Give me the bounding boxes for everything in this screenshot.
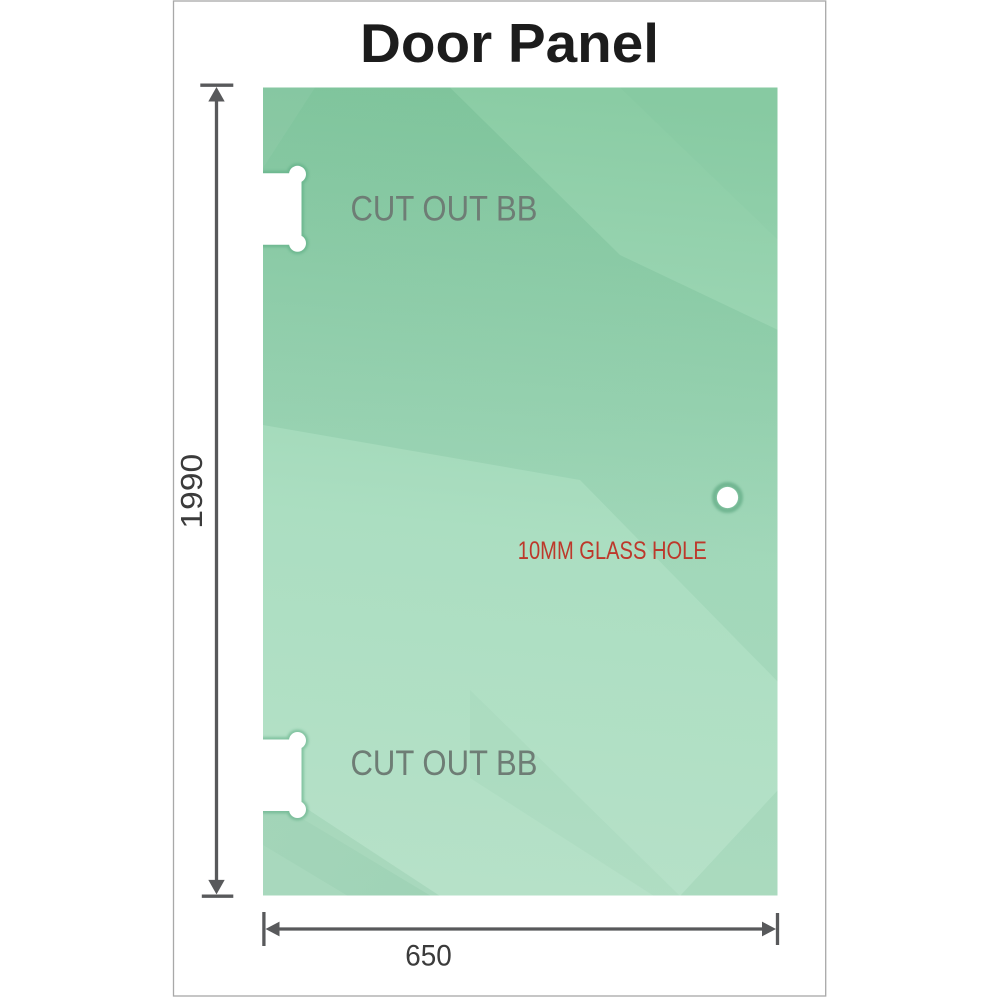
svg-text:CUT OUT BB: CUT OUT BB <box>351 743 538 783</box>
svg-text:CUT OUT BB: CUT OUT BB <box>351 189 538 229</box>
svg-text:1990: 1990 <box>175 454 209 529</box>
svg-text:Door Panel: Door Panel <box>360 12 659 74</box>
svg-text:10MM GLASS HOLE: 10MM GLASS HOLE <box>518 537 707 565</box>
svg-text:650: 650 <box>405 940 452 973</box>
